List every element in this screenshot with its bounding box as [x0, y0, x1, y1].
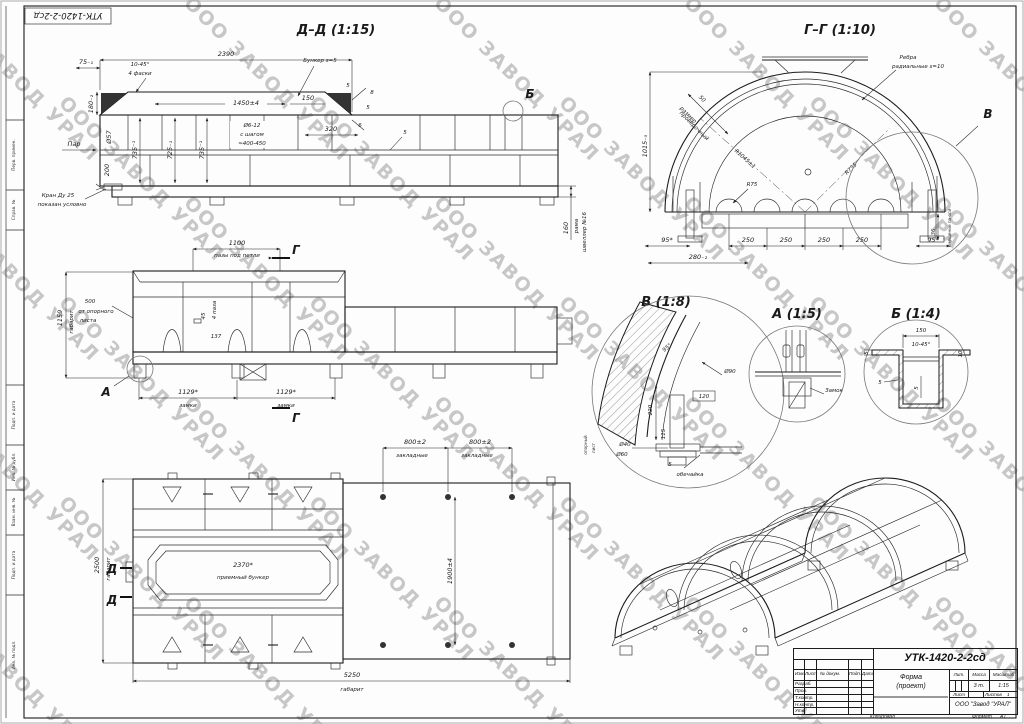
- locks-note: замки: [179, 403, 197, 409]
- dim: 160: [562, 222, 570, 234]
- tb-header-cell: Подп.: [849, 671, 861, 676]
- radius-label: R75: [747, 182, 758, 188]
- drawing-canvas: Перв. примен. Справ. № Подп. и дата Инв.…: [0, 0, 1024, 724]
- shell-note: обечайка: [676, 472, 704, 478]
- support-note: лист: [591, 442, 596, 453]
- dim: 800±2: [469, 438, 491, 446]
- dim: Ø90: [723, 368, 736, 375]
- section-d-label: Д: [106, 562, 118, 576]
- weld-num: 5: [403, 130, 407, 136]
- dim: 220: [648, 404, 654, 415]
- dim: 1129*: [276, 388, 297, 396]
- dim: 1159: [56, 310, 64, 327]
- dim: Ø57: [105, 129, 113, 144]
- dim: Ø60: [615, 451, 628, 458]
- copied-label: Копировал: [870, 714, 895, 720]
- chamfer-note: 4 фаски: [128, 71, 152, 77]
- dim: 2500: [93, 557, 101, 574]
- dim: 95*: [661, 236, 673, 244]
- dim: 1100: [229, 239, 246, 247]
- dim: 200: [103, 164, 111, 176]
- tb-scale-value: 1:15: [990, 683, 1017, 689]
- view-gg-title: Г–Г (1:10): [804, 23, 876, 38]
- support-note: опорный: [583, 435, 588, 455]
- dim: 735⁻¹: [131, 140, 139, 159]
- view-isometric: [612, 478, 968, 655]
- view-dd-title: Д–Д (1:15): [296, 23, 375, 38]
- margin-label: Подп. и дата: [11, 400, 16, 429]
- margin-label: Перв. примен.: [11, 139, 16, 170]
- dim: 250: [742, 236, 754, 244]
- dim: 2390: [218, 50, 235, 58]
- dim: 36: [931, 228, 937, 235]
- holes-note: ≈400-450: [238, 141, 266, 147]
- callout-v-label: В: [983, 107, 992, 121]
- sheet-note: от опорного: [78, 309, 114, 315]
- view-v: В (1:8) 95° Ø90 120 220 115 Ø40 Ø60 5 об…: [583, 295, 784, 488]
- steam-label: Пар: [68, 140, 81, 148]
- tb-sheet-label: Лист: [950, 692, 968, 697]
- view-dd: Д–Д (1:15) Пар: [38, 23, 588, 252]
- view-a-title: А (1:5): [771, 307, 822, 322]
- dim: 115: [661, 428, 667, 439]
- dim: 1450±4: [233, 99, 259, 107]
- bunker-note: приемный бункер: [217, 575, 269, 581]
- dim: 250: [818, 236, 830, 244]
- dim: 1900±4: [446, 558, 454, 584]
- tb-doc-number: УТК-1420-2-2сд: [873, 652, 1017, 664]
- check-note: проверочный: [678, 110, 710, 142]
- view-plan: 2370* приемный бункер 800±2 закладные 80…: [93, 438, 570, 693]
- format-label: Формат: [972, 714, 992, 720]
- tb-header-cell: Изм.: [795, 671, 805, 676]
- tb-mass-label: Масса: [969, 672, 989, 677]
- tb-company: ООО "Завод "УРАЛ": [949, 702, 1017, 708]
- view-b: Б (1:4) 150 10-45° 5 5 5 10: [864, 307, 970, 424]
- callout-a-label: А: [100, 385, 110, 399]
- radius-label: R735: [844, 162, 859, 177]
- tb-sign-row: Н.контр.: [795, 702, 814, 707]
- margin-label: Взам. инв. №: [11, 497, 16, 526]
- callout-b-label: Б: [525, 87, 534, 101]
- dim: 150: [916, 328, 927, 334]
- dim: 500: [85, 299, 96, 305]
- embed-note: закладные: [461, 453, 493, 459]
- dim: 800±2: [404, 438, 426, 446]
- dim: 10: [958, 350, 964, 357]
- dim: 150: [302, 94, 314, 102]
- drawing-sheet: ООО ЗАВОД УРАЛООО ЗАВОД УРАЛООО ЗАВОД УР…: [0, 0, 1024, 724]
- tb-sheets-label: Листов: [985, 692, 1002, 697]
- gab-note: габарит: [340, 687, 364, 693]
- holes-note: Ø6-12: [243, 122, 261, 129]
- gab-note: габарит: [69, 310, 75, 334]
- dim: 2370*: [233, 561, 254, 569]
- radius-label: R1045±1: [733, 148, 756, 170]
- dim: 137: [211, 334, 222, 340]
- dim: 280₋₂: [689, 253, 708, 261]
- tb-mass-value: 3 т.: [969, 683, 989, 689]
- dim: 250: [780, 236, 792, 244]
- dim: 320: [325, 125, 337, 133]
- bunker-note: Бункер s=5: [303, 58, 337, 64]
- view-a: А (1:5) Замок: [749, 307, 845, 422]
- dim: 1129*: [178, 388, 199, 396]
- margin-label: Инв. № подл.: [11, 641, 16, 670]
- embed-note: закладные: [396, 453, 428, 459]
- view-gg: Г–Г (1:10) R: [641, 23, 993, 264]
- tb-header-cell: № докум.: [820, 671, 840, 676]
- weld-num: 5: [346, 83, 350, 89]
- section-g-label: Г: [292, 411, 301, 425]
- offset-note: смещение по оси: [947, 209, 952, 247]
- dim: 95*: [927, 236, 939, 244]
- dim: 5: [914, 386, 920, 390]
- tb-header-cell: Дата: [862, 671, 874, 676]
- ribs-note: Ребра: [900, 55, 918, 61]
- sheet-note: листа: [79, 318, 97, 324]
- tb-sheets-value: 1: [1007, 692, 1010, 697]
- margin-label: Справ. №: [11, 199, 16, 220]
- tb-sign-row: Разраб.: [795, 681, 812, 686]
- margin-label: Инв. № дубл.: [11, 453, 16, 482]
- dim: 250: [856, 236, 868, 244]
- lock-note: Замок: [825, 388, 843, 394]
- corner-stamp: УТК-1420-2-2сд: [34, 10, 103, 20]
- dim: 45: [201, 312, 207, 319]
- dim: 725₋₁: [166, 140, 174, 159]
- chamfer-note: 10-45°: [131, 62, 150, 68]
- dim: 75₋₁: [79, 58, 94, 66]
- tb-sign-row: Утв.: [795, 708, 805, 713]
- title-block: Изм. Лист № докум. Подп. Дата Разраб. Пр…: [793, 648, 1018, 715]
- dim: 5: [668, 462, 672, 468]
- hinge-note: пазы под петли: [214, 253, 260, 259]
- tb-lit-label: Лит.: [950, 672, 968, 677]
- tb-product-title: (проект): [874, 683, 948, 690]
- dim: 1015₋₅: [641, 134, 649, 157]
- tb-sign-row: Т.контр.: [795, 695, 814, 700]
- frame-note: швеллер №16: [582, 211, 588, 252]
- valve-note: Кран Ду 25: [42, 193, 75, 199]
- dim: 5: [878, 380, 882, 386]
- format-value: А1: [1000, 714, 1006, 720]
- section-g-label: Г: [292, 243, 301, 257]
- weld-num: 8: [370, 90, 374, 96]
- dim: 5: [864, 351, 870, 355]
- valve-note: показан условно: [38, 202, 87, 208]
- margin-label: Подп. и дата: [11, 550, 16, 579]
- dim: 5250: [344, 671, 361, 679]
- paz-note: 4 паза: [212, 300, 218, 319]
- dim: 735⁻¹: [198, 140, 206, 159]
- view-side: 1100 пазы под петли 1159 габарит 500 от …: [56, 239, 572, 425]
- section-d-label: Д: [106, 593, 118, 607]
- dim: 180₋₂: [87, 94, 95, 113]
- dim: Ø40: [618, 441, 631, 448]
- tb-scale-label: Масштаб: [990, 672, 1017, 677]
- tb-header-cell: Лист: [805, 671, 817, 676]
- check-note: 50: [697, 95, 707, 105]
- tb-product-title: Форма: [874, 674, 948, 681]
- ribs-note: радиальные s=10: [891, 64, 944, 70]
- holes-note: с шагом: [240, 132, 264, 138]
- tb-sign-row: Пров.: [795, 688, 807, 693]
- weld-num: 5: [366, 105, 370, 111]
- dim: 10-45°: [912, 342, 931, 348]
- frame-note: рама: [574, 218, 580, 234]
- dim: 120: [699, 394, 710, 400]
